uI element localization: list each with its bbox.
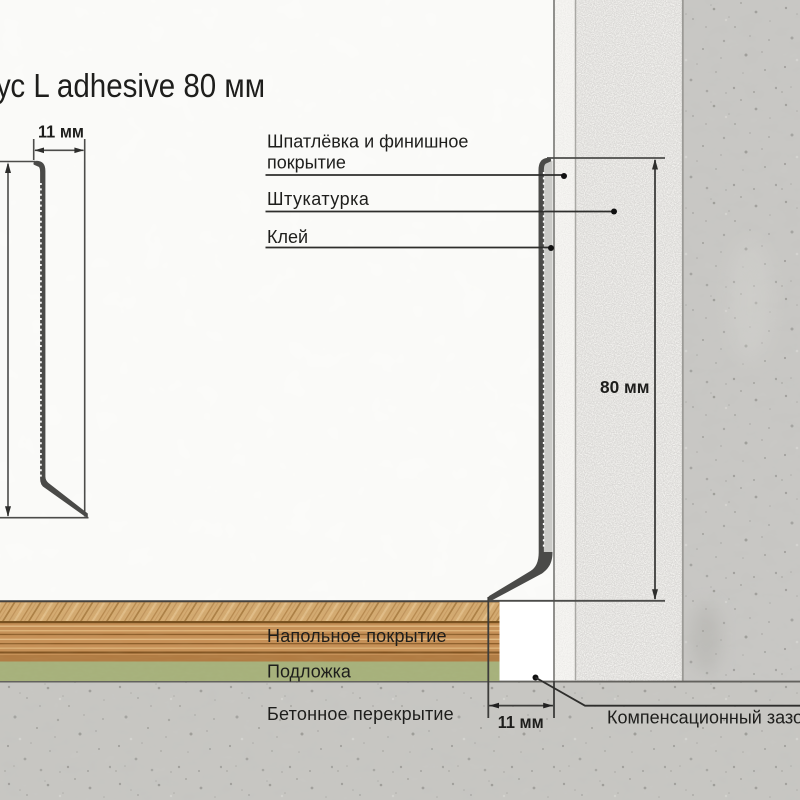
svg-text:покрытие: покрытие xyxy=(267,152,346,172)
svg-text:Напольное покрытие: Напольное покрытие xyxy=(267,626,447,646)
svg-text:Шпатлёвка и финишное: Шпатлёвка и финишное xyxy=(267,132,468,152)
svg-text:ус L adhesive 80 мм: ус L adhesive 80 мм xyxy=(0,67,265,104)
svg-text:Бетонное перекрытие: Бетонное перекрытие xyxy=(267,704,454,724)
svg-text:11 мм: 11 мм xyxy=(38,122,84,142)
svg-text:Клей: Клей xyxy=(267,227,308,247)
svg-text:11 мм: 11 мм xyxy=(498,712,544,732)
svg-text:Штукатурка: Штукатурка xyxy=(267,189,370,209)
svg-text:Подложка: Подложка xyxy=(267,662,352,682)
svg-text:80 мм: 80 мм xyxy=(600,377,650,397)
svg-text:Компенсационный зазор: Компенсационный зазор xyxy=(607,708,800,728)
